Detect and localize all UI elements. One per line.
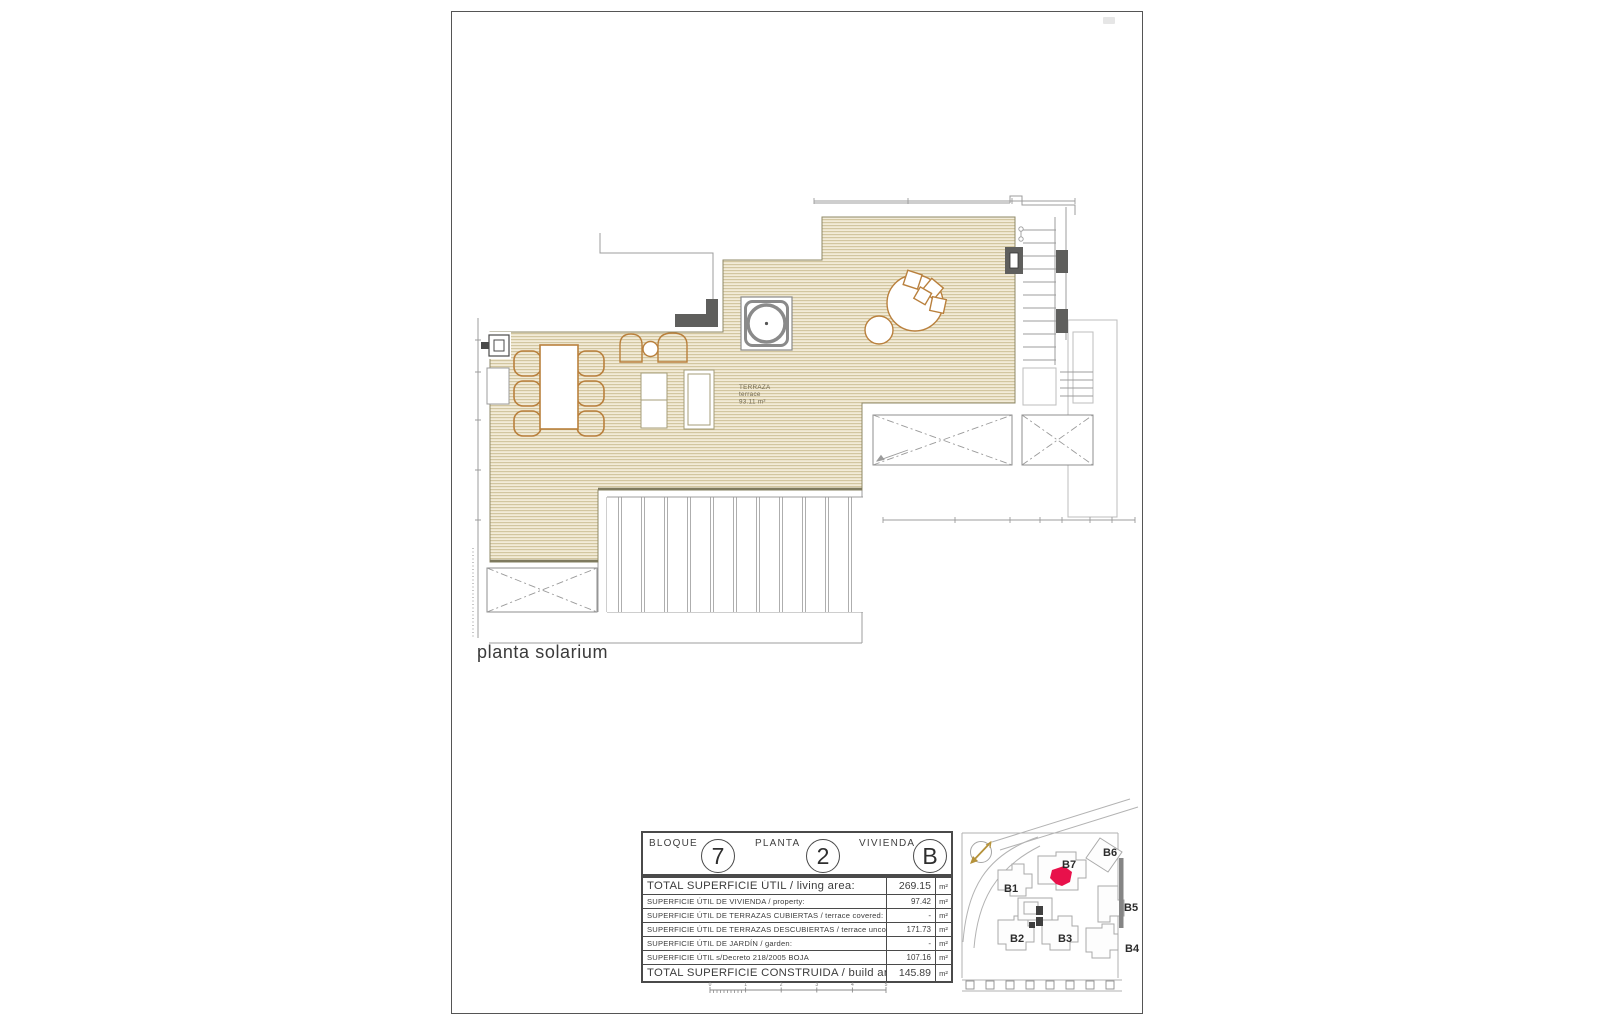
plan-title: planta solarium xyxy=(477,642,608,663)
site-map-label-b2: B2 xyxy=(1010,933,1024,945)
scale-bar: 0 1 2 3 4 5 xyxy=(708,981,888,995)
building-b4 xyxy=(1086,924,1118,958)
row-value: 107.16 xyxy=(886,951,935,964)
terrace-label-en: terrace xyxy=(739,391,761,398)
planta-label: PLANTA xyxy=(755,838,800,849)
terrace-label: TERRAZA xyxy=(739,384,771,391)
site-map: B1 B2 B3 B4 B5 B6 B7 xyxy=(955,798,1145,1000)
row-unit: m² xyxy=(935,965,951,981)
area-table-row: SUPERFICIE ÚTIL DE VIVIENDA / property: … xyxy=(643,894,951,908)
row-value: - xyxy=(886,937,935,950)
scale-number: 1 xyxy=(744,982,747,988)
area-table-row: SUPERFICIE ÚTIL DE TERRAZAS CUBIERTAS / … xyxy=(643,908,951,922)
scale-number: 3 xyxy=(815,982,818,988)
floor-plan: TERRAZA terrace 93.11 m² xyxy=(450,180,1150,660)
site-map-label-b1: B1 xyxy=(1004,883,1018,895)
row-label: SUPERFICIE ÚTIL DE VIVIENDA / property: xyxy=(643,897,886,906)
planta-value: 2 xyxy=(806,839,840,873)
row-value: 269.15 xyxy=(886,878,935,894)
pergola-slats xyxy=(607,497,863,612)
dimension-line-bottom xyxy=(883,517,1135,523)
area-table-row: SUPERFICIE ÚTIL DE TERRAZAS DESCUBIERTAS… xyxy=(643,922,951,936)
title-block-header: BLOQUE 7 PLANTA 2 VIVIENDA B xyxy=(641,831,953,876)
scale-number: 5 xyxy=(885,982,888,988)
planter-notch xyxy=(487,368,509,404)
row-value: 97.42 xyxy=(886,895,935,908)
bloque-value: 7 xyxy=(701,839,735,873)
row-value: 171.73 xyxy=(886,923,935,936)
staircase-lower xyxy=(1060,372,1093,396)
row-label: SUPERFICIE ÚTIL DE JARDÍN / garden: xyxy=(643,939,886,948)
section-marker xyxy=(1019,227,1023,241)
scale-number: 2 xyxy=(780,982,783,988)
site-map-label-b4: B4 xyxy=(1125,943,1140,955)
column-slot xyxy=(1010,253,1018,268)
vivienda-value: B xyxy=(913,839,947,873)
row-label: TOTAL SUPERFICIE CONSTRUIDA / build area… xyxy=(643,967,886,979)
drawing-sheet: TERRAZA terrace 93.11 m² planta solarium… xyxy=(0,0,1600,1024)
area-table-row: TOTAL SUPERFICIE CONSTRUIDA / build area… xyxy=(643,964,951,981)
terrace-area-value: 93.11 m² xyxy=(739,399,766,406)
hot-tub xyxy=(741,297,792,350)
site-map-label-b6: B6 xyxy=(1103,847,1117,859)
row-label: SUPERFICIE ÚTIL s/Decreto 218/2005 BOJA xyxy=(643,953,886,962)
vivienda-label: VIVIENDA xyxy=(859,838,915,849)
map-boundary-bar xyxy=(1119,858,1124,928)
access-door-symbol xyxy=(481,335,509,356)
site-map-label-b3: B3 xyxy=(1058,933,1072,945)
row-unit: m² xyxy=(935,909,951,922)
row-unit: m² xyxy=(935,951,951,964)
scale-number: 4 xyxy=(851,982,854,988)
site-map-label-b5: B5 xyxy=(1124,902,1138,914)
row-unit: m² xyxy=(935,878,951,894)
row-value: 145.89 xyxy=(886,965,935,981)
row-unit: m² xyxy=(935,937,951,950)
area-table-row: SUPERFICIE ÚTIL s/Decreto 218/2005 BOJA … xyxy=(643,950,951,964)
scale-number: 0 xyxy=(709,982,712,988)
row-label: SUPERFICIE ÚTIL DE TERRAZAS DESCUBIERTAS… xyxy=(643,925,886,934)
map-fence xyxy=(966,981,1114,989)
site-map-label-b7: B7 xyxy=(1062,859,1076,871)
page-artifact xyxy=(1103,17,1115,24)
area-table-row: TOTAL SUPERFICIE ÚTIL / living area: 269… xyxy=(643,878,951,894)
area-table: TOTAL SUPERFICIE ÚTIL / living area: 269… xyxy=(641,876,953,983)
staircase-upper xyxy=(1023,230,1056,360)
row-value: - xyxy=(886,909,935,922)
north-arrow-icon xyxy=(970,842,992,865)
bloque-label: BLOQUE xyxy=(649,838,698,849)
area-table-row: SUPERFICIE ÚTIL DE JARDÍN / garden: - m² xyxy=(643,936,951,950)
row-unit: m² xyxy=(935,923,951,936)
row-label: SUPERFICIE ÚTIL DE TERRAZAS CUBIERTAS / … xyxy=(643,911,886,920)
row-unit: m² xyxy=(935,895,951,908)
row-label: TOTAL SUPERFICIE ÚTIL / living area: xyxy=(643,880,886,892)
